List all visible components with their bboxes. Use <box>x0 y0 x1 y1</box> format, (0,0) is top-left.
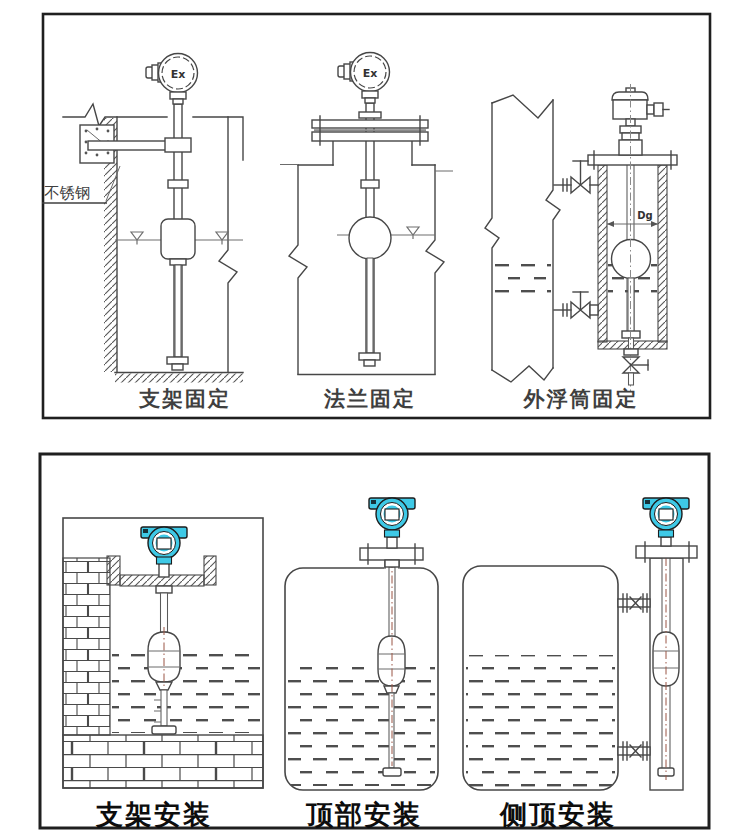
stainless-steel-label: 不锈钢 <box>44 184 91 202</box>
ex-marking-text: Ex <box>363 67 378 80</box>
ground-hatching <box>115 374 243 383</box>
display-window <box>659 509 673 520</box>
installation-diagram-figure: Ex 不锈钢 支架固定 <box>0 0 750 840</box>
display-window <box>385 509 399 520</box>
caption-side-top-installation: 侧顶安装 <box>499 799 616 830</box>
display-window <box>157 538 171 549</box>
brick-wall <box>63 558 110 735</box>
rod-coupling <box>156 586 172 593</box>
float-ball <box>349 217 391 259</box>
vessel-liquid <box>494 257 551 303</box>
diagram-bracket-installation: 支架安装 <box>63 518 263 830</box>
bracket-post-right <box>204 556 216 585</box>
rod-coupling <box>168 180 188 188</box>
cable-gland-icon <box>647 105 654 114</box>
rod-clamp <box>165 138 191 152</box>
caption-flange-fixing: 法兰固定 <box>323 387 416 411</box>
bracket-arm <box>88 141 170 150</box>
rod-coupling <box>361 180 379 188</box>
rod-end-stop <box>359 353 380 360</box>
diagram-canvas: Ex 不锈钢 支架固定 <box>0 0 750 840</box>
caption-bracket-installation: 支架安装 <box>95 799 212 830</box>
chamber-flange <box>588 155 677 165</box>
rod-coupling <box>385 560 399 567</box>
mounting-flange <box>312 116 428 145</box>
ex-marking-text: Ex <box>171 68 186 81</box>
caption-bracket-fixing: 支架固定 <box>138 387 231 411</box>
rod-end-stop <box>383 768 401 776</box>
liquid <box>466 655 615 787</box>
rod-end-stop <box>167 357 188 364</box>
caption-top-installation: 顶部安装 <box>305 799 422 830</box>
rod-end-stop <box>152 726 176 734</box>
dg-label: Dg <box>637 210 652 221</box>
float <box>161 219 195 259</box>
liquid <box>112 648 261 733</box>
bracket-post-left <box>107 556 120 585</box>
brick-floor <box>63 735 263 788</box>
chamber-wall-left <box>598 165 607 342</box>
liquid <box>288 658 435 786</box>
mounting-flange <box>360 548 423 560</box>
chamber-wall-right <box>658 165 667 342</box>
caption-external-chamber-fixing: 外浮筒固定 <box>523 387 639 411</box>
